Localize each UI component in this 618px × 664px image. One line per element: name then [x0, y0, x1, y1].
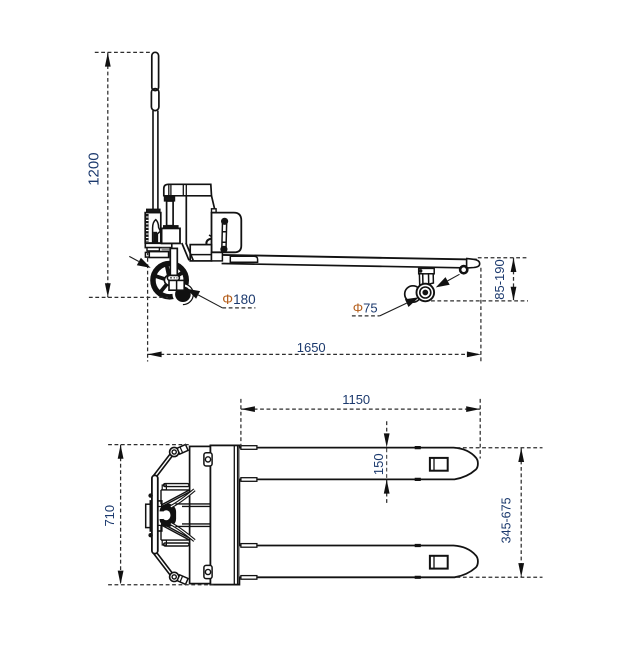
svg-text:Φ75: Φ75	[353, 300, 378, 315]
svg-text:345-675: 345-675	[500, 497, 514, 543]
svg-text:150: 150	[371, 453, 386, 475]
svg-text:1150: 1150	[342, 392, 370, 407]
svg-text:85-190: 85-190	[492, 259, 507, 299]
svg-text:1650: 1650	[297, 340, 326, 355]
svg-text:Φ180: Φ180	[222, 292, 255, 307]
svg-text:1200: 1200	[85, 152, 102, 185]
svg-text:710: 710	[102, 505, 117, 527]
